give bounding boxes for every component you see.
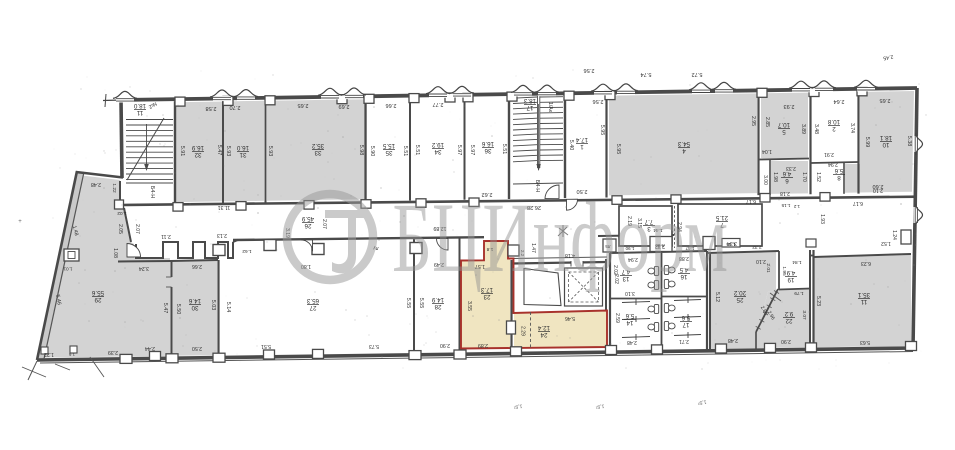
svg-text:2.56: 2.56 <box>593 98 604 104</box>
svg-text:3.74: 3.74 <box>849 123 855 133</box>
svg-text:5.38: 5.38 <box>906 136 912 147</box>
svg-text:2.01: 2.01 <box>765 263 771 273</box>
svg-text:10.8: 10.8 <box>827 118 840 125</box>
svg-text:5.72: 5.72 <box>692 71 703 77</box>
svg-text:19: 19 <box>787 276 794 283</box>
svg-text:3.55: 3.55 <box>466 301 472 311</box>
svg-text:16.9: 16.9 <box>191 144 204 151</box>
svg-text:1,5²: 1,5² <box>513 403 522 410</box>
svg-text:5.63: 5.63 <box>860 339 870 345</box>
svg-text:17: 17 <box>682 321 689 328</box>
svg-text:2.13: 2.13 <box>217 232 227 238</box>
svg-text:22: 22 <box>785 317 792 324</box>
svg-text:19.2: 19.2 <box>431 141 444 148</box>
svg-text:5.6: 5.6 <box>681 314 690 321</box>
svg-text:6.23: 6.23 <box>861 260 871 266</box>
svg-text:5.51: 5.51 <box>261 343 271 349</box>
svg-text:5.14: 5.14 <box>225 302 231 313</box>
svg-text:2.10: 2.10 <box>873 187 883 193</box>
svg-text:33: 33 <box>314 149 321 156</box>
svg-text:10.7: 10.7 <box>777 121 790 128</box>
svg-text:17.4: 17.4 <box>575 136 588 143</box>
svg-text:1.22: 1.22 <box>44 351 54 357</box>
svg-text:1.01: 1.01 <box>63 267 72 272</box>
svg-text:20.2: 20.2 <box>733 289 746 296</box>
svg-text:2.29: 2.29 <box>520 326 526 336</box>
svg-text:17: 17 <box>526 104 533 111</box>
svg-text:18.0: 18.0 <box>133 102 146 109</box>
svg-text:5.98: 5.98 <box>358 145 364 156</box>
svg-text:65.3: 65.3 <box>306 297 319 304</box>
svg-text:3.07: 3.07 <box>801 310 807 320</box>
svg-text:5.47: 5.47 <box>216 145 222 156</box>
svg-text:2: 2 <box>832 125 836 132</box>
svg-text:2.32: 2.32 <box>752 244 762 250</box>
svg-text:2.90: 2.90 <box>781 338 791 344</box>
svg-text:3.48: 3.48 <box>813 124 819 134</box>
svg-text:2.66: 2.66 <box>192 263 202 269</box>
svg-text:29: 29 <box>94 296 101 303</box>
svg-text:26: 26 <box>304 222 311 229</box>
svg-text:11: 11 <box>136 109 143 116</box>
svg-text:5.51: 5.51 <box>501 144 507 155</box>
svg-text:30: 30 <box>191 304 198 311</box>
svg-text:2.48: 2.48 <box>627 339 637 345</box>
svg-text:6.17: 6.17 <box>853 200 863 206</box>
svg-text:2.59: 2.59 <box>614 313 620 323</box>
svg-text:1.79: 1.79 <box>794 290 804 296</box>
svg-text:1.98: 1.98 <box>772 172 778 182</box>
svg-text:5.55: 5.55 <box>405 298 411 309</box>
svg-text:1.52: 1.52 <box>881 240 891 246</box>
svg-text:5.90: 5.90 <box>369 146 375 157</box>
svg-text:10: 10 <box>882 141 889 148</box>
svg-text:1: 1 <box>580 143 584 150</box>
svg-text:5.55: 5.55 <box>418 298 424 309</box>
svg-text:28: 28 <box>434 303 441 310</box>
svg-text:5.03: 5.03 <box>210 300 216 311</box>
svg-text:1.70: 1.70 <box>801 172 807 182</box>
svg-text:5.12: 5.12 <box>714 292 720 302</box>
svg-text:18.1: 18.1 <box>879 134 892 141</box>
svg-text:5.99: 5.99 <box>864 137 870 148</box>
svg-text:2.85: 2.85 <box>764 117 770 127</box>
svg-text:2.65: 2.65 <box>880 97 891 103</box>
svg-text:2.58: 2.58 <box>206 105 217 111</box>
svg-text:3.00: 3.00 <box>762 175 768 185</box>
svg-text:3.24: 3.24 <box>139 265 149 271</box>
svg-text:45.9: 45.9 <box>301 215 314 222</box>
svg-text:2.07: 2.07 <box>321 219 327 229</box>
svg-text:1.08: 1.08 <box>112 248 118 258</box>
svg-text:5.6: 5.6 <box>834 167 843 174</box>
svg-text:6: 6 <box>785 177 789 184</box>
svg-text:2.33: 2.33 <box>786 165 796 171</box>
svg-text:5.47: 5.47 <box>162 303 168 314</box>
svg-text:2.05: 2.05 <box>117 224 123 234</box>
svg-text:2.48: 2.48 <box>91 181 101 187</box>
svg-text:5.97: 5.97 <box>456 145 462 156</box>
svg-text:5.93: 5.93 <box>225 146 231 157</box>
svg-text:2.48: 2.48 <box>728 337 738 343</box>
svg-text:+: + <box>18 219 22 225</box>
svg-text:15.5: 15.5 <box>382 142 395 149</box>
svg-text:12.4: 12.4 <box>537 324 550 331</box>
svg-text:2.71: 2.71 <box>679 338 689 344</box>
svg-text:1.2: 1.2 <box>793 204 800 209</box>
svg-text:2.65: 2.65 <box>298 102 309 108</box>
svg-text:2.44: 2.44 <box>145 345 155 351</box>
svg-text:2.39: 2.39 <box>108 349 118 355</box>
svg-text:25: 25 <box>736 296 743 303</box>
svg-text:2.66: 2.66 <box>386 102 397 108</box>
svg-text:34: 34 <box>434 148 441 155</box>
svg-text:2.56: 2.56 <box>584 67 595 73</box>
svg-text:6.17: 6.17 <box>746 198 756 204</box>
svg-text:2.77: 2.77 <box>433 101 444 107</box>
svg-text:1.95: 1.95 <box>781 266 787 276</box>
svg-text:2.50: 2.50 <box>192 345 202 351</box>
svg-text:2.11: 2.11 <box>161 233 171 239</box>
svg-text:2.07: 2.07 <box>134 224 140 234</box>
svg-text:11: 11 <box>860 298 867 305</box>
svg-text:5.51: 5.51 <box>414 145 420 156</box>
svg-text:5.74: 5.74 <box>641 71 652 77</box>
svg-text:БЦИнформ: БЦИнформ <box>392 182 728 293</box>
svg-text:18.3: 18.3 <box>523 97 536 104</box>
svg-text:1.62: 1.62 <box>242 248 252 254</box>
svg-text:27: 27 <box>309 304 316 311</box>
svg-text:16.0: 16.0 <box>236 144 249 151</box>
svg-text:1/Ак: 1/Ак <box>547 102 553 113</box>
svg-text:8: 8 <box>837 174 841 181</box>
svg-text:36: 36 <box>484 147 491 154</box>
svg-text:5.40: 5.40 <box>568 140 574 151</box>
svg-text:35: 35 <box>385 149 392 156</box>
svg-text:5: 5 <box>782 128 786 135</box>
svg-text:2.18: 2.18 <box>780 190 790 196</box>
svg-text:2.70: 2.70 <box>230 104 241 110</box>
svg-text:55.6: 55.6 <box>91 289 104 296</box>
svg-text:5.23: 5.23 <box>815 296 821 306</box>
svg-text:54.3: 54.3 <box>677 140 690 147</box>
svg-text:1.24: 1.24 <box>891 230 897 240</box>
svg-text:2.91: 2.91 <box>824 151 834 157</box>
svg-text:1,5²: 1,5² <box>595 403 604 410</box>
svg-text:5.50: 5.50 <box>175 304 181 315</box>
svg-text:5.6: 5.6 <box>625 312 634 319</box>
svg-text:2.93: 2.93 <box>784 103 795 109</box>
svg-text:5.95: 5.95 <box>615 144 621 155</box>
svg-text:11.31: 11.31 <box>218 204 231 210</box>
svg-text:5.91: 5.91 <box>179 146 185 157</box>
svg-text:5.93: 5.93 <box>267 146 273 157</box>
svg-text:1.93: 1.93 <box>819 214 825 224</box>
svg-text:2.95: 2.95 <box>750 116 756 126</box>
svg-text:2.89: 2.89 <box>478 342 488 348</box>
svg-text:24: 24 <box>540 331 547 338</box>
svg-text:14: 14 <box>626 319 633 326</box>
svg-text:2.10: 2.10 <box>756 258 766 264</box>
svg-text:35.2: 35.2 <box>311 142 324 149</box>
svg-text:5.95: 5.95 <box>599 125 605 136</box>
svg-text:16.6: 16.6 <box>481 140 494 147</box>
svg-text:4.9: 4.9 <box>786 269 795 276</box>
svg-text:3.89: 3.89 <box>800 124 806 134</box>
svg-text:1.04: 1.04 <box>762 148 772 154</box>
svg-text:9.2: 9.2 <box>784 310 793 317</box>
svg-text:1.15: 1.15 <box>781 203 790 208</box>
svg-text:1.02: 1.02 <box>117 210 127 216</box>
svg-text:14.9: 14.9 <box>431 296 444 303</box>
svg-text:35.1: 35.1 <box>857 291 870 298</box>
svg-text:1.22: 1.22 <box>111 183 117 193</box>
svg-text:1.84: 1.84 <box>792 259 802 265</box>
svg-text:5.97: 5.97 <box>469 145 475 156</box>
svg-text:1.52: 1.52 <box>815 172 821 182</box>
svg-text:5.73: 5.73 <box>369 343 379 349</box>
svg-text:Б4-Н: Б4-Н <box>149 186 155 198</box>
svg-text:2.90: 2.90 <box>440 342 450 348</box>
svg-text:1.6: 1.6 <box>68 352 75 357</box>
svg-text:31: 31 <box>239 151 246 158</box>
svg-text:1,5²: 1,5² <box>697 398 707 405</box>
svg-text:5.51: 5.51 <box>402 146 408 157</box>
svg-text:32: 32 <box>194 151 201 158</box>
svg-text:5.46: 5.46 <box>565 315 575 321</box>
svg-text:4: 4 <box>682 147 686 154</box>
svg-text:2.64: 2.64 <box>834 98 845 104</box>
svg-text:23: 23 <box>483 293 490 300</box>
svg-text:14.6: 14.6 <box>188 297 201 304</box>
svg-text:2.69: 2.69 <box>339 103 350 109</box>
